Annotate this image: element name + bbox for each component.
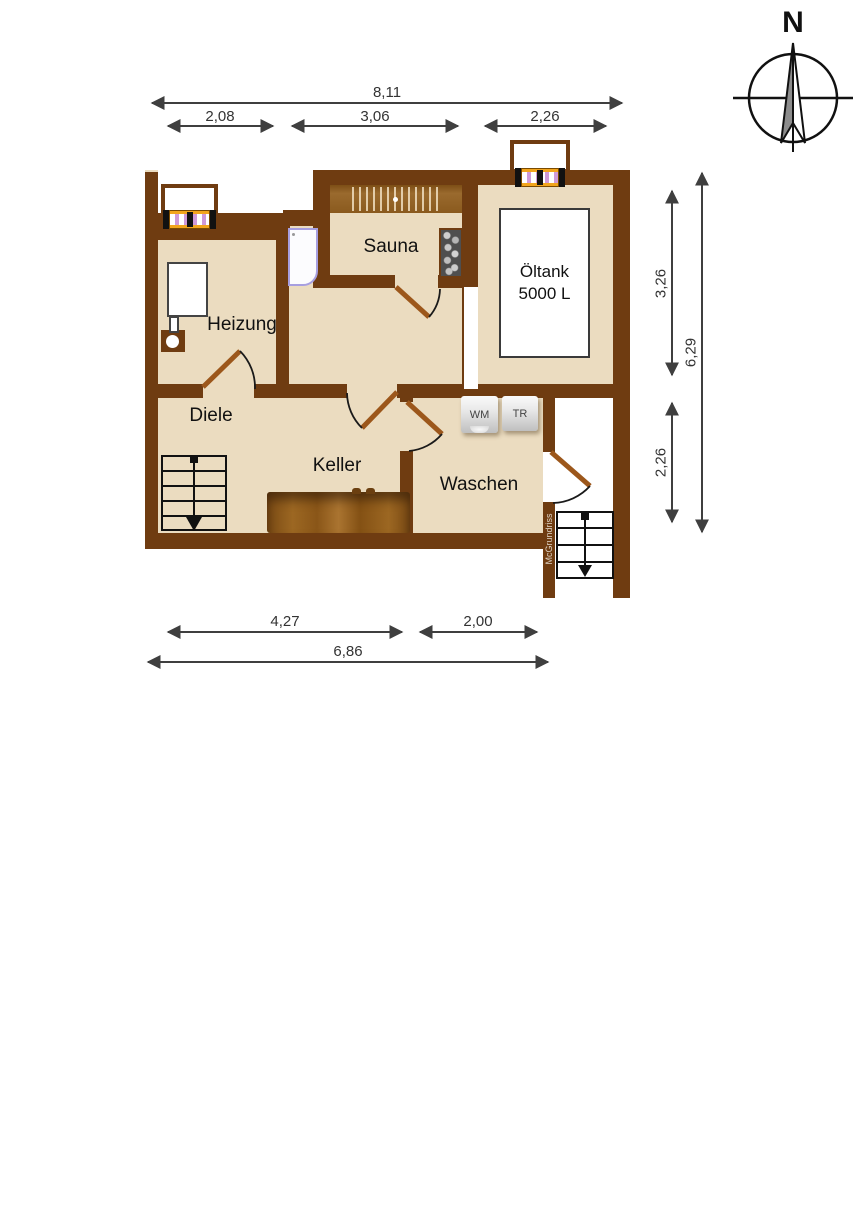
door-leaf-sauna xyxy=(396,287,429,317)
dim-label-top-seg1: 2,08 xyxy=(180,108,260,125)
compass-needle-left xyxy=(781,43,793,143)
door-leaf-keller xyxy=(362,392,397,428)
compass-north-label: N xyxy=(763,6,823,40)
door-leaf-exterior xyxy=(551,452,590,486)
door-arc-exterior xyxy=(553,486,590,503)
dim-label-top-total: 8,11 xyxy=(347,84,427,101)
plan-linework xyxy=(0,0,864,700)
dim-label-bottom-total: 6,86 xyxy=(308,643,388,660)
dim-label-right-seg2: 2,26 xyxy=(653,413,670,513)
stairs-interior-arrow-down xyxy=(186,517,202,531)
dim-label-right-seg1: 3,26 xyxy=(653,234,670,334)
door-arc-keller xyxy=(347,393,362,428)
dimension-lines xyxy=(148,103,702,662)
stairs-exterior-start-marker xyxy=(581,512,589,520)
room-label-diele: Diele xyxy=(161,405,261,427)
compass-icon xyxy=(733,43,853,152)
stairs-interior-start-marker xyxy=(190,455,198,463)
room-label-waschen: Waschen xyxy=(419,474,539,496)
dim-label-top-seg3: 2,26 xyxy=(505,108,585,125)
door-arc-sauna xyxy=(429,289,440,317)
room-label-keller: Keller xyxy=(287,455,387,477)
watermark-label: McGrundriss xyxy=(544,484,554,594)
door-arc-heizung xyxy=(240,351,255,389)
dim-label-bottom-seg2: 2,00 xyxy=(438,613,518,630)
room-label-sauna: Sauna xyxy=(341,236,441,258)
room-label-heizung: Heizung xyxy=(182,314,302,336)
stairs-exterior-arrow-down xyxy=(578,565,592,577)
dim-label-bottom-seg1: 4,27 xyxy=(245,613,325,630)
door-leaf-heizung xyxy=(203,351,240,387)
compass-needle-right xyxy=(793,43,805,143)
door-arc-waschen xyxy=(409,434,442,451)
dim-label-right-total: 6,29 xyxy=(683,303,700,403)
floor-plan-page: Öltank 5000 L WM TR xyxy=(0,0,864,1216)
door-leaf-waschen xyxy=(407,402,442,434)
dim-label-top-seg2: 3,06 xyxy=(335,108,415,125)
